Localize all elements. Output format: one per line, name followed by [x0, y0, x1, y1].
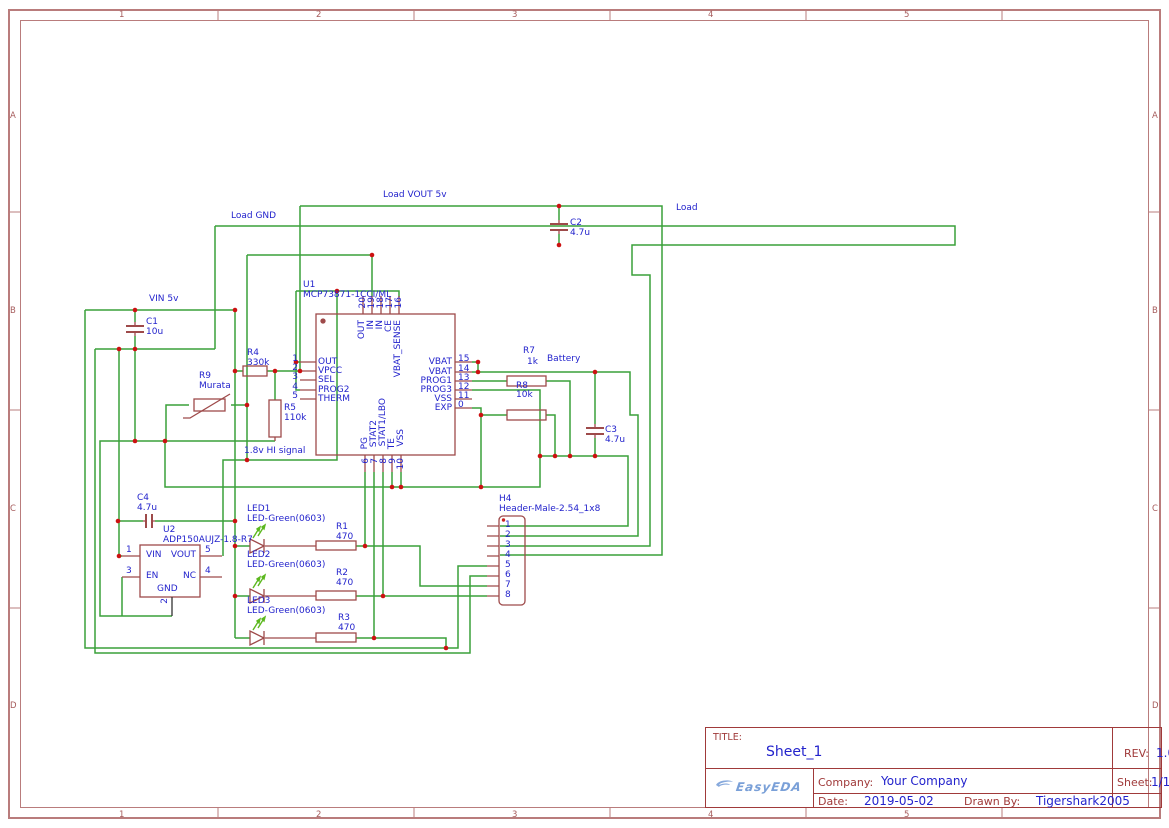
c3-plates: [586, 428, 604, 434]
r9-body: [194, 399, 225, 411]
u2-gnd-name[interactable]: GND: [157, 584, 178, 594]
c2-ref[interactable]: C2: [570, 218, 582, 228]
frame-col-2-top: 2: [316, 10, 321, 20]
u1-pin5-num[interactable]: 5: [292, 391, 298, 401]
h4-body: [499, 516, 525, 605]
c4-value[interactable]: 4.7u: [137, 503, 157, 513]
date-value[interactable]: 2019-05-02: [864, 794, 934, 808]
u2-pin5-name[interactable]: VOUT: [171, 550, 196, 560]
frame-col-5-top: 5: [904, 10, 909, 20]
u2-value[interactable]: ADP150AUJZ-1.8-R7: [163, 535, 253, 545]
date-label: Date:: [818, 795, 848, 808]
drawn-by-label: Drawn By:: [964, 795, 1020, 808]
u1-ref[interactable]: U1: [303, 280, 315, 290]
r9-value[interactable]: Murata: [199, 381, 231, 391]
r5-body: [269, 400, 281, 437]
r5-value[interactable]: 110k: [284, 413, 306, 423]
r2-value[interactable]: 470: [336, 578, 353, 588]
r2-body: [316, 591, 356, 600]
c2-plates: [550, 224, 568, 230]
led2-ref[interactable]: LED2: [247, 550, 270, 560]
u2-pin1-num[interactable]: 1: [126, 545, 132, 555]
frame-row-A-right: A: [1152, 111, 1158, 121]
u1-pin15-name[interactable]: VBAT: [429, 357, 452, 367]
frame-row-C-left: C: [10, 504, 16, 514]
frame-col-1-bottom: 1: [119, 810, 124, 820]
sheet-label: Sheet:: [1117, 776, 1153, 789]
r1-value[interactable]: 470: [336, 532, 353, 542]
h4-pin6-num[interactable]: 6: [505, 570, 511, 580]
r3-ref[interactable]: R3: [338, 613, 350, 623]
frame-row-A-left: A: [10, 111, 16, 121]
frame-col-4-top: 4: [708, 10, 713, 20]
u1-pin1-marker: [321, 319, 325, 323]
c1-plates: [126, 326, 144, 332]
easyeda-logo: EasyEDA: [714, 776, 814, 798]
h4-pin2-num[interactable]: 2: [505, 530, 511, 540]
net-hi-signal[interactable]: 1.8v HI signal: [244, 446, 305, 456]
u1-pin10-name[interactable]: VSS: [396, 429, 406, 447]
frame-col-3-top: 3: [512, 10, 517, 20]
wire-layer[interactable]: [85, 206, 955, 653]
h4-ref[interactable]: H4: [499, 494, 512, 504]
frame-row-D-right: D: [1152, 701, 1159, 711]
c1-value[interactable]: 10u: [146, 327, 163, 337]
u2-ref[interactable]: U2: [163, 525, 175, 535]
frame-col-3-bottom: 3: [512, 810, 517, 820]
c1-ref[interactable]: C1: [146, 317, 158, 327]
u1-pin21-num[interactable]: 0: [458, 400, 464, 410]
frame-col-4-bottom: 4: [708, 810, 713, 820]
frame-row-B-right: B: [1152, 306, 1158, 316]
easyeda-swoosh-icon: [714, 776, 736, 792]
net-load[interactable]: Load: [676, 203, 698, 213]
h4-pin5-num[interactable]: 5: [505, 560, 511, 570]
r7-value[interactable]: 1k: [527, 357, 538, 367]
title-block: TITLE: Sheet_1 REV: 1.0 EasyEDA Company:…: [705, 727, 1162, 808]
u2-pin5-num[interactable]: 5: [205, 545, 211, 555]
frame-row-B-left: B: [10, 306, 16, 316]
r7-ref[interactable]: R7: [523, 346, 535, 356]
rev-value: 1.0: [1156, 746, 1169, 760]
frame-col-1-top: 1: [119, 10, 124, 20]
u2-pin2-num[interactable]: 2: [160, 598, 170, 604]
u1-pin15-num[interactable]: 15: [458, 354, 469, 364]
h4-pin1-num[interactable]: 1: [505, 520, 511, 530]
led3-value[interactable]: LED-Green(0603): [247, 606, 325, 616]
net-battery[interactable]: Battery: [547, 354, 580, 364]
c2-value[interactable]: 4.7u: [570, 228, 590, 238]
company-label: Company:: [818, 776, 873, 789]
r2-ref[interactable]: R2: [336, 568, 348, 578]
u2-pin1-name[interactable]: VIN: [146, 550, 162, 560]
sheet-title[interactable]: Sheet_1: [766, 744, 822, 760]
r9-ref[interactable]: R9: [199, 371, 211, 381]
u1-pin16-name[interactable]: VBAT_SENSE: [393, 320, 403, 377]
net-vin-5v[interactable]: VIN 5v: [149, 294, 178, 304]
u1-pin21-name[interactable]: EXP: [435, 403, 452, 413]
net-load-gnd[interactable]: Load GND: [231, 211, 276, 221]
u2-pin3-name[interactable]: EN: [146, 571, 158, 581]
r8-value[interactable]: 10k: [516, 390, 533, 400]
u2-pin4-name[interactable]: NC: [183, 571, 196, 581]
h4-pin4-num[interactable]: 4: [505, 550, 511, 560]
frame-row-C-right: C: [1152, 504, 1158, 514]
h4-pin8-num[interactable]: 8: [505, 590, 511, 600]
u2-pin4-num[interactable]: 4: [205, 566, 211, 576]
h4-pin3-num[interactable]: 3: [505, 540, 511, 550]
sheet-value: 1/1: [1151, 775, 1169, 789]
led3-ref[interactable]: LED3: [247, 596, 270, 606]
r4-ref[interactable]: R4: [247, 348, 259, 358]
led3-symbol: [250, 631, 316, 645]
frame-col-5-bottom: 5: [904, 810, 909, 820]
sheet-frame: [9, 10, 1160, 818]
schematic-drawing: [0, 0, 1169, 828]
c3-value[interactable]: 4.7u: [605, 435, 625, 445]
led1-ref[interactable]: LED1: [247, 504, 270, 514]
c4-ref[interactable]: C4: [137, 493, 149, 503]
frame-col-2-bottom: 2: [316, 810, 321, 820]
drawn-by-value[interactable]: Tigershark2005: [1036, 794, 1130, 808]
u1-pin5-name[interactable]: THERM: [318, 394, 350, 404]
u1-pin3-name[interactable]: SEL: [318, 375, 334, 385]
c4-plates: [146, 514, 152, 528]
u1-pin3-num[interactable]: 3: [292, 372, 298, 382]
u2-pin3-num[interactable]: 3: [126, 566, 132, 576]
u1-pin16-num[interactable]: 16: [394, 297, 404, 308]
company-value[interactable]: Your Company: [881, 774, 968, 788]
r4-value[interactable]: 330k: [247, 358, 269, 368]
u1-pin10-num[interactable]: 10: [396, 458, 406, 469]
c3-ref[interactable]: C3: [605, 425, 617, 435]
schematic-canvas[interactable]: Load VOUT 5vLoad GNDVIN 5v1.8v HI signal…: [0, 0, 1169, 828]
h4-pin7-num[interactable]: 7: [505, 580, 511, 590]
r5-ref[interactable]: R5: [284, 403, 296, 413]
led2-value[interactable]: LED-Green(0603): [247, 560, 325, 570]
r3-body: [316, 633, 356, 642]
rev-label: REV:: [1124, 747, 1149, 760]
net-load-vout[interactable]: Load VOUT 5v: [383, 190, 447, 200]
title-label: TITLE:: [713, 732, 742, 743]
frame-row-D-left: D: [10, 701, 17, 711]
h4-value[interactable]: Header-Male-2.54_1x8: [499, 504, 600, 514]
r1-body: [316, 541, 356, 550]
led1-value[interactable]: LED-Green(0603): [247, 514, 325, 524]
r1-ref[interactable]: R1: [336, 522, 348, 532]
r3-value[interactable]: 470: [338, 623, 355, 633]
